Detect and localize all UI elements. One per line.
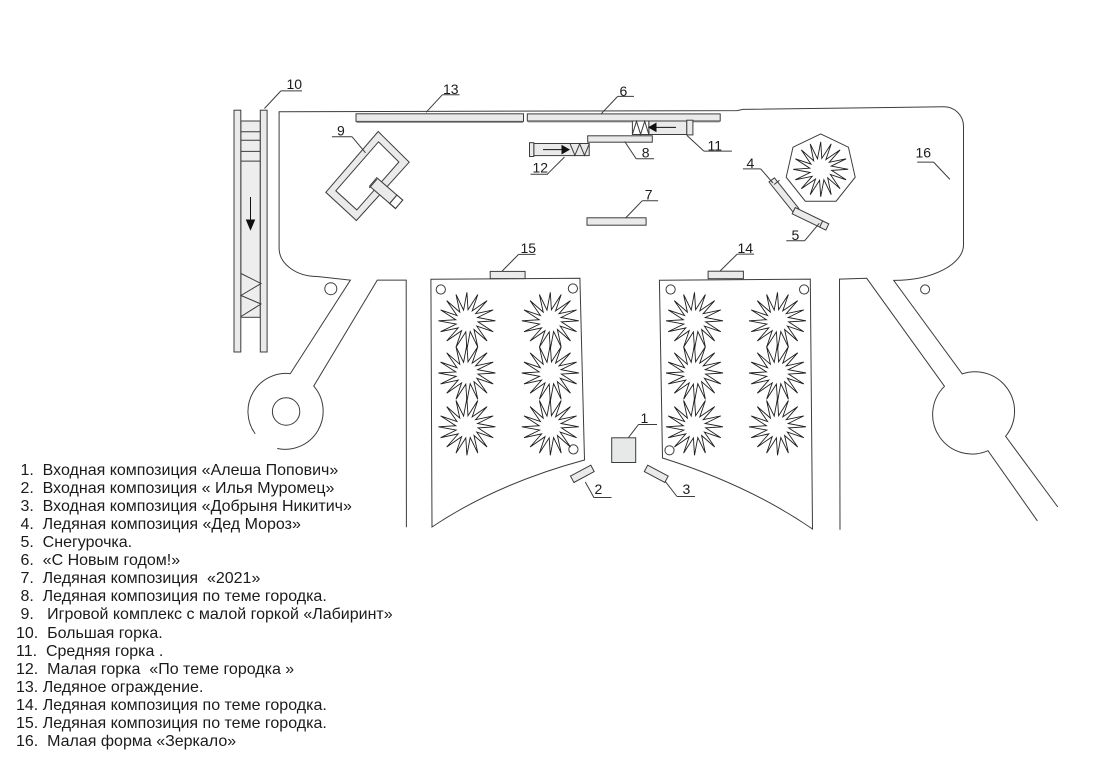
svg-text:16: 16 [916,144,932,160]
svg-text:2: 2 [595,481,603,497]
svg-text:12: 12 [533,160,549,176]
svg-text:1: 1 [641,410,649,426]
svg-text:9: 9 [337,123,345,139]
svg-text:3: 3 [683,481,691,497]
svg-text:8: 8 [642,145,650,161]
svg-text:15: 15 [521,240,537,256]
svg-text:10: 10 [287,76,303,92]
